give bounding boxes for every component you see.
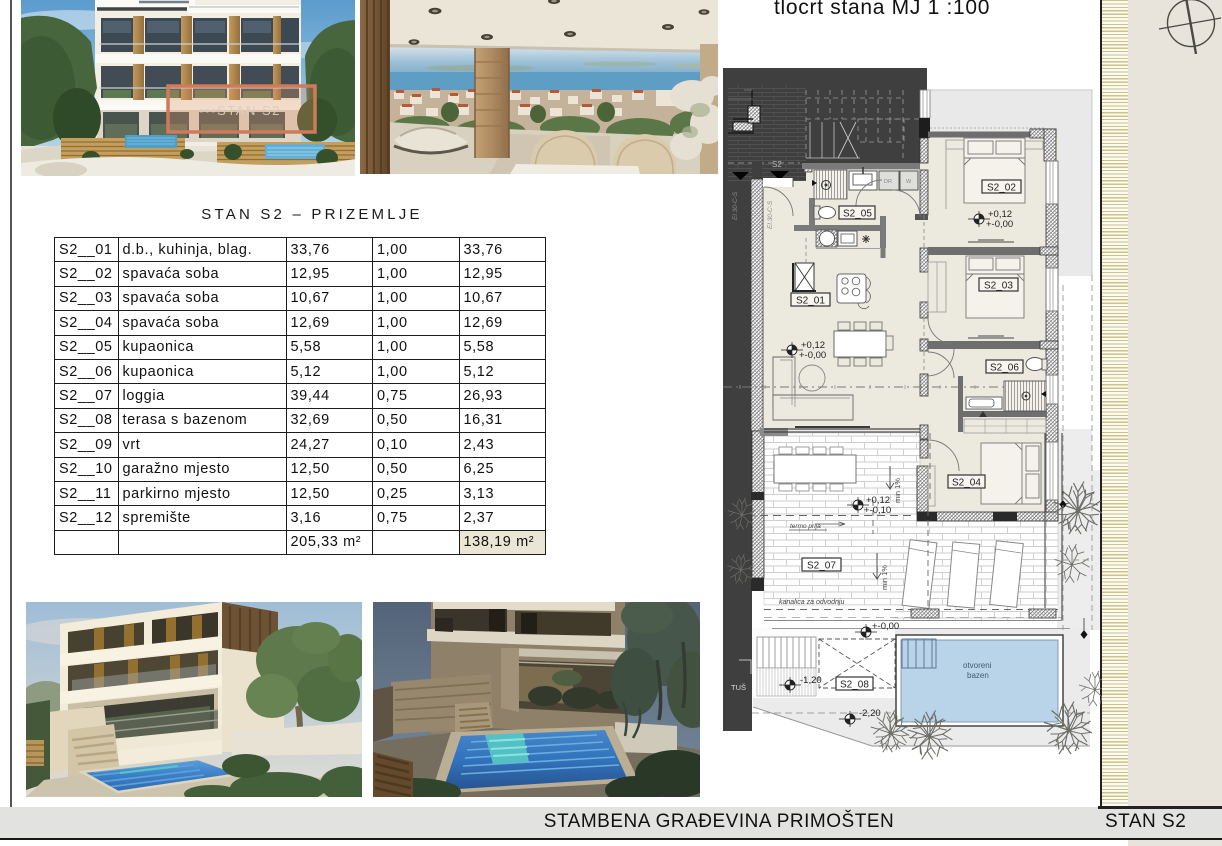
svg-text:S2_06: S2_06	[990, 363, 1019, 374]
svg-text:bazen: bazen	[967, 671, 989, 680]
svg-text:kanalica za odvodnju: kanalica za odvodnju	[779, 599, 844, 606]
svg-text:+-0,00: +-0,00	[872, 621, 899, 632]
svg-text:otvoreni: otvoreni	[963, 661, 992, 670]
svg-text:-1,20: -1,20	[800, 675, 822, 686]
svg-text:S2_04: S2_04	[952, 478, 981, 489]
svg-text:S2_08: S2_08	[840, 680, 869, 691]
svg-text:S2_07: S2_07	[807, 561, 836, 572]
svg-text:S2_02: S2_02	[987, 183, 1016, 194]
svg-text:S2_03: S2_03	[984, 281, 1013, 292]
svg-text:S2_05: S2_05	[843, 209, 872, 220]
svg-text:S2_01: S2_01	[796, 296, 825, 307]
svg-text:W: W	[906, 179, 912, 185]
svg-text:DR: DR	[884, 179, 892, 185]
svg-text:El.30-C-S: El.30-C-S	[732, 191, 739, 220]
svg-text:•••STAN S2: •••STAN S2	[199, 103, 281, 118]
svg-text:min 1%: min 1%	[880, 565, 889, 590]
svg-text:TUŠ: TUŠ	[731, 683, 746, 692]
svg-text:+-0,10: +-0,10	[864, 505, 891, 516]
svg-text:+-0,00: +-0,00	[986, 219, 1013, 230]
svg-text:+-0,00: +-0,00	[799, 350, 826, 361]
svg-text:min 1%: min 1%	[893, 478, 902, 503]
svg-text:S2: S2	[772, 160, 782, 169]
svg-text:El.30-C-S: El.30-C-S	[767, 200, 774, 229]
